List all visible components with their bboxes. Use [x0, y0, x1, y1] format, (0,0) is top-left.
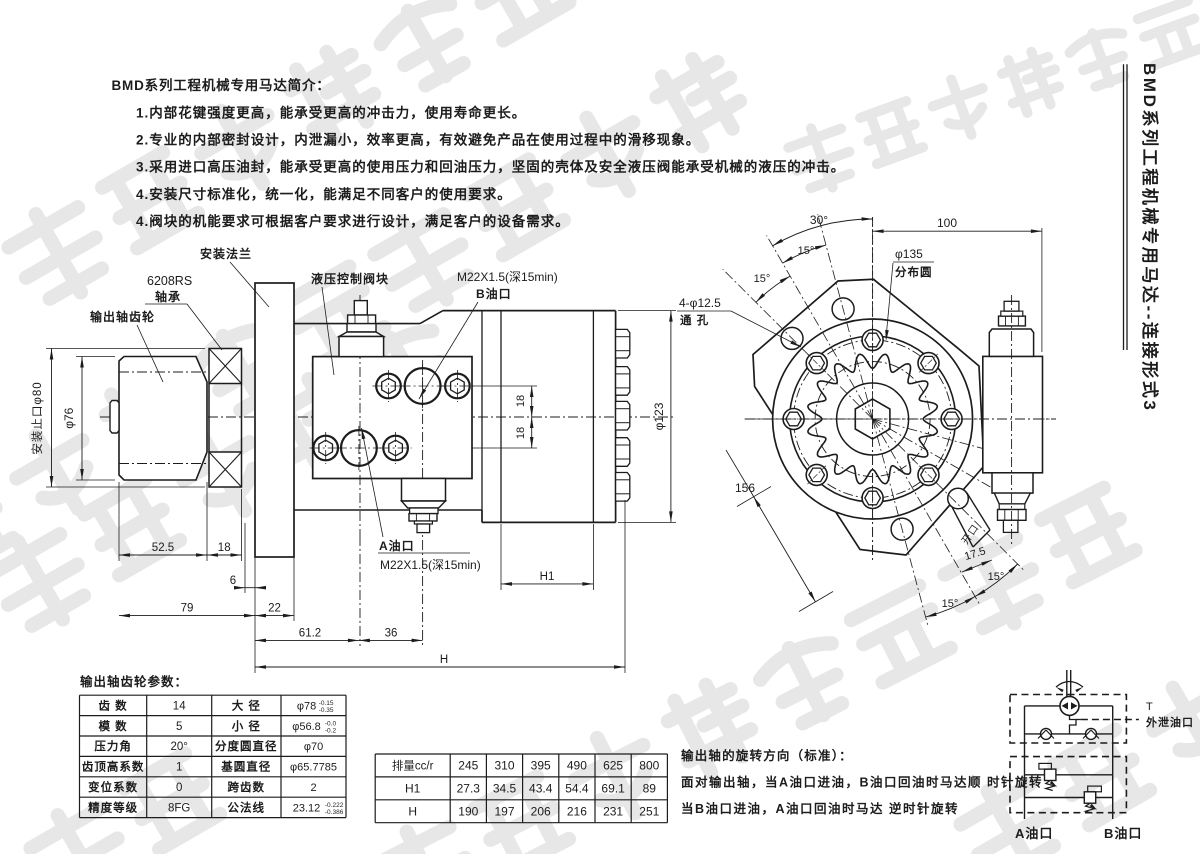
svg-text:36: 36 [385, 627, 398, 639]
svg-text:8FG: 8FG [168, 802, 190, 814]
svg-text:φ123: φ123 [652, 402, 666, 430]
svg-text:22: 22 [268, 603, 281, 615]
svg-text:φ65.7785: φ65.7785 [290, 762, 337, 774]
svg-text:面对输出轴，当A油口进油，B油口回油时马达顺 时针旋转: 面对输出轴，当A油口进油，B油口回油时马达顺 时针旋转 [681, 775, 1043, 790]
svg-text:分度圆直径: 分度圆直径 [215, 739, 278, 753]
svg-text:206: 206 [531, 804, 551, 818]
svg-text:5: 5 [176, 721, 182, 733]
svg-text:φ135: φ135 [895, 247, 923, 261]
svg-text:B油口: B油口 [476, 286, 512, 301]
svg-text:6208RS: 6208RS [147, 274, 192, 288]
svg-text:190: 190 [458, 804, 478, 818]
svg-text:30°: 30° [810, 213, 828, 227]
svg-text:490: 490 [567, 759, 587, 773]
svg-text:216: 216 [567, 804, 587, 818]
svg-text:输出轴齿轮参数：: 输出轴齿轮参数： [80, 674, 188, 689]
svg-text:安装法兰: 安装法兰 [200, 246, 252, 261]
svg-text:A油口: A油口 [379, 538, 415, 553]
svg-text:通 孔: 通 孔 [680, 314, 709, 327]
svg-text:0: 0 [176, 782, 182, 794]
svg-text:-0.15: -0.15 [319, 700, 334, 707]
svg-text:2: 2 [310, 782, 316, 794]
svg-text:跨齿数: 跨齿数 [228, 780, 266, 794]
svg-text:800: 800 [639, 759, 659, 773]
svg-text:大 径: 大 径 [232, 698, 261, 712]
svg-text:BMD系列工程机械专用马达--连接形式3: BMD系列工程机械专用马达--连接形式3 [1140, 63, 1160, 413]
svg-text:34.5: 34.5 [493, 781, 517, 795]
svg-text:精度等级: 精度等级 [88, 800, 138, 814]
svg-text:310: 310 [494, 759, 514, 773]
svg-text:61.2: 61.2 [299, 627, 321, 639]
svg-text:输出轴的旋转方向（标准）：: 输出轴的旋转方向（标准）： [681, 748, 853, 763]
svg-text:15°: 15° [798, 245, 815, 257]
svg-text:69.1: 69.1 [601, 781, 625, 795]
svg-text:模 数: 模 数 [98, 719, 127, 733]
svg-text:分布圆: 分布圆 [895, 265, 933, 279]
svg-text:100: 100 [937, 216, 957, 230]
svg-text:-0.386: -0.386 [325, 809, 344, 816]
svg-text:-0.35: -0.35 [319, 707, 334, 714]
svg-text:H1: H1 [540, 571, 555, 583]
svg-text:-0.222: -0.222 [325, 802, 344, 809]
svg-text:14: 14 [173, 700, 186, 712]
svg-text:φ76: φ76 [62, 407, 76, 428]
svg-text:625: 625 [603, 759, 623, 773]
svg-text:15°: 15° [754, 273, 771, 285]
svg-text:18: 18 [515, 395, 527, 407]
svg-text:小 径: 小 径 [231, 719, 261, 733]
svg-text:54.4: 54.4 [565, 781, 589, 795]
svg-text:M22X1.5(深15min): M22X1.5(深15min) [380, 558, 481, 572]
svg-text:压力角: 压力角 [94, 739, 132, 753]
svg-text:-0.2: -0.2 [325, 727, 337, 734]
svg-text:轴承: 轴承 [155, 289, 181, 304]
svg-text:排量cc/r: 排量cc/r [392, 759, 434, 773]
svg-text:43.4: 43.4 [529, 781, 553, 795]
svg-text:输出轴齿轮: 输出轴齿轮 [90, 309, 155, 324]
svg-text:安装止口φ80: 安装止口φ80 [30, 381, 44, 454]
svg-text:M22X1.5(深15min): M22X1.5(深15min) [457, 270, 558, 284]
svg-text:4-φ12.5: 4-φ12.5 [679, 296, 721, 310]
svg-text:156: 156 [735, 481, 755, 495]
svg-text:φ56.8: φ56.8 [292, 721, 321, 733]
svg-text:1.内部花键强度更高，能承受更高的冲击力，使用寿命更长。: 1.内部花键强度更高，能承受更高的冲击力，使用寿命更长。 [136, 105, 526, 121]
svg-text:外泄油口: 外泄油口 [1145, 715, 1194, 729]
svg-text:4.阀块的机能要求可根据客户要求进行设计，满足客户的设备需求: 4.阀块的机能要求可根据客户要求进行设计，满足客户的设备需求。 [136, 213, 570, 229]
svg-text:231: 231 [603, 804, 623, 818]
svg-text:H: H [440, 654, 448, 666]
svg-text:20°: 20° [171, 741, 188, 753]
svg-text:15°: 15° [988, 571, 1005, 583]
svg-text:BMD系列工程机械专用马达简介：: BMD系列工程机械专用马达简介： [112, 77, 331, 93]
svg-text:89: 89 [643, 781, 657, 795]
svg-text:φ78: φ78 [297, 700, 316, 712]
svg-text:245: 245 [458, 759, 478, 773]
svg-text:3.采用进口高压油封，能承受更高的使用压力和回油压力，坚固的: 3.采用进口高压油封，能承受更高的使用压力和回油压力，坚固的壳体及安全液压阀能承… [136, 159, 845, 175]
svg-text:A油口: A油口 [1015, 826, 1053, 841]
svg-text:27.3: 27.3 [457, 781, 481, 795]
svg-text:变位系数: 变位系数 [88, 780, 138, 794]
svg-text:15°: 15° [942, 598, 959, 610]
svg-text:T: T [1146, 701, 1153, 713]
svg-text:-0.0: -0.0 [325, 720, 337, 727]
svg-text:251: 251 [639, 804, 659, 818]
svg-text:1: 1 [176, 762, 182, 774]
svg-text:齿 数: 齿 数 [98, 698, 127, 712]
svg-text:H1: H1 [405, 781, 421, 795]
svg-text:23.12: 23.12 [293, 802, 321, 814]
svg-text:79: 79 [181, 603, 194, 615]
svg-text:基圆直径: 基圆直径 [220, 760, 271, 774]
svg-text:当B油口进油，A油口回油时马达 逆时针旋转: 当B油口进油，A油口回油时马达 逆时针旋转 [681, 801, 959, 816]
svg-text:公法线: 公法线 [228, 800, 266, 814]
svg-text:197: 197 [494, 804, 514, 818]
svg-text:18: 18 [218, 542, 231, 554]
svg-text:395: 395 [531, 759, 551, 773]
svg-text:2.专业的内部密封设计，内泄漏小，效率更高，有效避免产品在使: 2.专业的内部密封设计，内泄漏小，效率更高，有效避免产品在使用过程中的滑移现象。 [136, 132, 700, 148]
svg-text:φ70: φ70 [304, 741, 323, 753]
svg-text:H: H [408, 804, 417, 818]
svg-text:52.5: 52.5 [152, 542, 174, 554]
svg-text:18: 18 [515, 427, 527, 439]
svg-text:4.安装尺寸标准化，统一化，能满足不同客户的使用要求。: 4.安装尺寸标准化，统一化，能满足不同客户的使用要求。 [136, 186, 512, 202]
svg-text:B油口: B油口 [1104, 826, 1142, 841]
svg-text:液压控制阀块: 液压控制阀块 [311, 271, 389, 286]
svg-text:齿顶高系数: 齿顶高系数 [82, 760, 145, 774]
svg-text:6: 6 [230, 575, 236, 587]
